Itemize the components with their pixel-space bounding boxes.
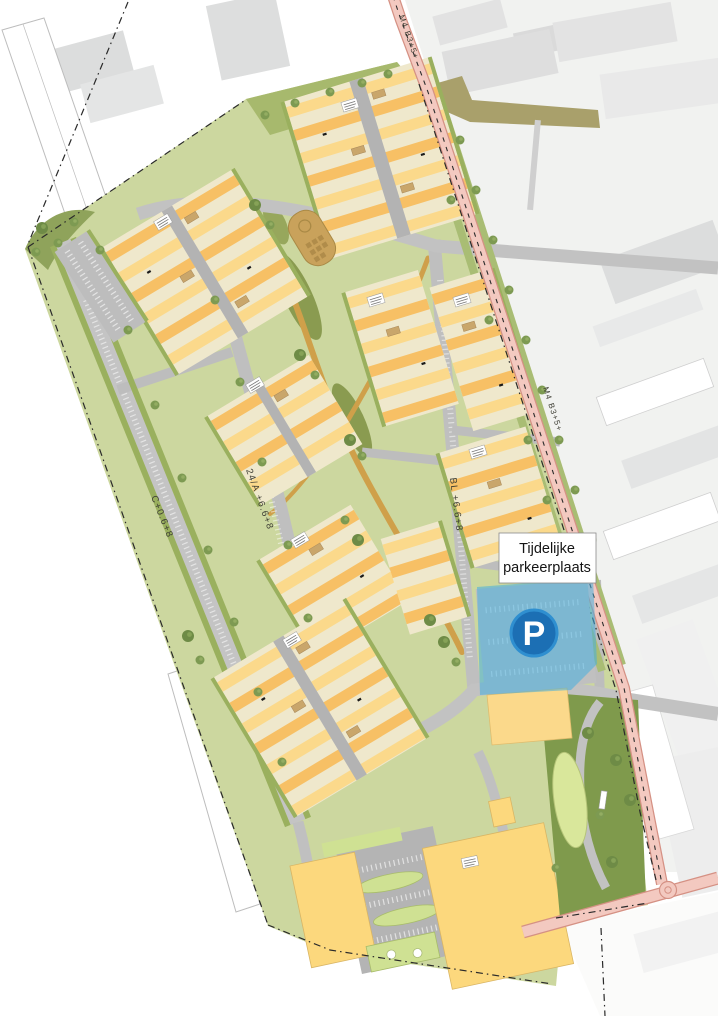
parking-badge-letter: P xyxy=(523,615,546,653)
apartment-block xyxy=(487,688,572,745)
site-plan-map: P Tijdelijke parkeerplaats M4 B3+5+ M4 B… xyxy=(0,0,718,1016)
annotation-line2: parkeerplaats xyxy=(503,560,591,576)
annotation-line1: Tijdelijke xyxy=(519,541,575,557)
annotation-box: Tijdelijke parkeerplaats xyxy=(499,533,596,583)
temporary-parking-zone: P xyxy=(476,578,597,695)
